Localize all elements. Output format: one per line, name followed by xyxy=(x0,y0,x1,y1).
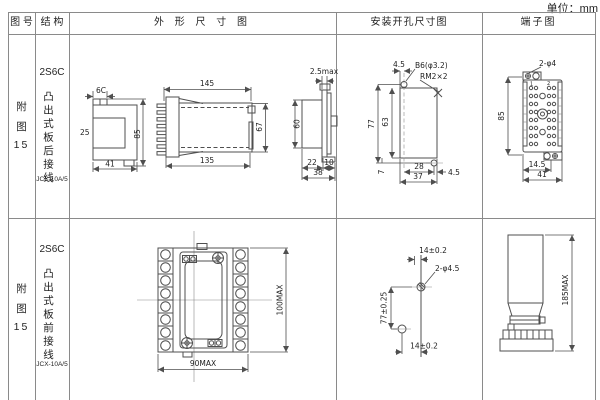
dim-67: 67 xyxy=(255,122,264,132)
dim-100max: 100MAX xyxy=(276,284,285,315)
row1-profile-drawing: 6C 25 85 41 xyxy=(80,85,150,185)
dim-2-5max: 2.5max xyxy=(310,67,339,76)
dim-6c: 6C xyxy=(96,86,106,95)
row2-fig-char2: 图 xyxy=(8,301,35,316)
dim-41: 41 xyxy=(105,160,115,169)
dim-77-tol: 77±0.25 xyxy=(380,292,389,325)
row1-structure-type: 凸出式板后接线 xyxy=(41,86,56,190)
dim-14-top: 14±0.2 xyxy=(419,246,447,255)
dim-135: 135 xyxy=(200,156,215,165)
row1-structure-model: 2S6C xyxy=(35,67,69,78)
dim-28: 28 xyxy=(414,162,424,171)
table-col-divider-2 xyxy=(69,12,70,400)
dim-10: 10 xyxy=(324,158,334,167)
row2-structure-type: 凸出式板前接线 xyxy=(41,263,56,367)
row2-terminal-drawing: 185MAX xyxy=(495,228,595,393)
terminal-index-1: 1 xyxy=(530,82,533,88)
table-right-border xyxy=(595,12,596,400)
row1-fig-num: 15 xyxy=(8,139,35,151)
row2-mounting-drawing: 2-φ4.5 14±0.2 14±0.2 77±0.25 xyxy=(372,232,477,387)
dim-85: 85 xyxy=(133,129,142,139)
row1-panel-drawing: 2.5max 60 22 10 38 xyxy=(290,60,360,200)
terminal-index-2: 2 xyxy=(547,81,550,87)
header-fig-no: 图 号 xyxy=(8,13,35,33)
dim-14-bottom: 14±0.2 xyxy=(410,342,438,351)
row2-structure-model: 2S6C xyxy=(35,244,69,255)
dim-41-terminal: 41 xyxy=(537,170,547,179)
dim-2-phi4: 2-φ4 xyxy=(539,59,556,68)
dim-4-5-right: 4.5 xyxy=(448,168,460,177)
header-outline: 外 形 尺 寸 图 xyxy=(69,13,336,33)
relay-pins xyxy=(157,104,166,155)
table-row-divider xyxy=(8,218,595,219)
dim-90max: 90MAX xyxy=(190,359,216,368)
dim-145: 145 xyxy=(200,79,215,88)
dim-22: 22 xyxy=(307,158,317,167)
header-structure: 结 构 xyxy=(35,13,69,33)
dim-77: 77 xyxy=(367,119,376,129)
label-screw-spec: RM2×2 xyxy=(420,72,448,81)
dim-14-5: 14.5 xyxy=(529,160,546,169)
table-header-border xyxy=(8,34,595,35)
row1-mounting-drawing: 4.5 B6(φ3.2) RM2×2 77 63 7 28 37 4.5 xyxy=(358,58,483,203)
dim-2-phi4-5: 2-φ4.5 xyxy=(435,264,460,273)
header-mounting: 安装开孔尺寸图 xyxy=(336,13,482,33)
row2-fig-char1: 附 xyxy=(8,281,35,296)
socket-screw-row xyxy=(509,330,545,339)
dim-7: 7 xyxy=(377,169,386,174)
dim-4-5-top: 4.5 xyxy=(393,60,405,69)
dim-85-terminal: 85 xyxy=(497,111,506,121)
row2-structure-code: JCX-10A/5 xyxy=(35,361,69,368)
terminal-contacts xyxy=(529,86,555,145)
header-terminal: 端子图 xyxy=(482,13,595,33)
dim-185max: 185MAX xyxy=(561,274,570,305)
dim-37: 37 xyxy=(413,172,423,181)
dim-25: 25 xyxy=(80,128,90,137)
row2-front-drawing: 90MAX 100MAX xyxy=(135,225,315,400)
row1-terminal-drawing: 1 2 2-φ4 85 14.5 41 xyxy=(495,58,595,208)
label-hole-spec: B6(φ3.2) xyxy=(415,61,448,70)
row1-fig-char1: 附 xyxy=(8,99,35,114)
dim-63: 63 xyxy=(381,117,390,127)
dim-60: 60 xyxy=(293,119,302,129)
row1-fig-char2: 图 xyxy=(8,119,35,134)
row2-fig-num: 15 xyxy=(8,321,35,333)
table-left-border xyxy=(8,12,9,400)
dim-38: 38 xyxy=(313,168,323,177)
row1-structure-code: JCX-10A/5 xyxy=(35,176,69,183)
datasheet-page: 单位：mm 图 号 结 构 外 形 尺 寸 图 安装开孔尺寸图 端子图 附 图 … xyxy=(0,0,600,400)
